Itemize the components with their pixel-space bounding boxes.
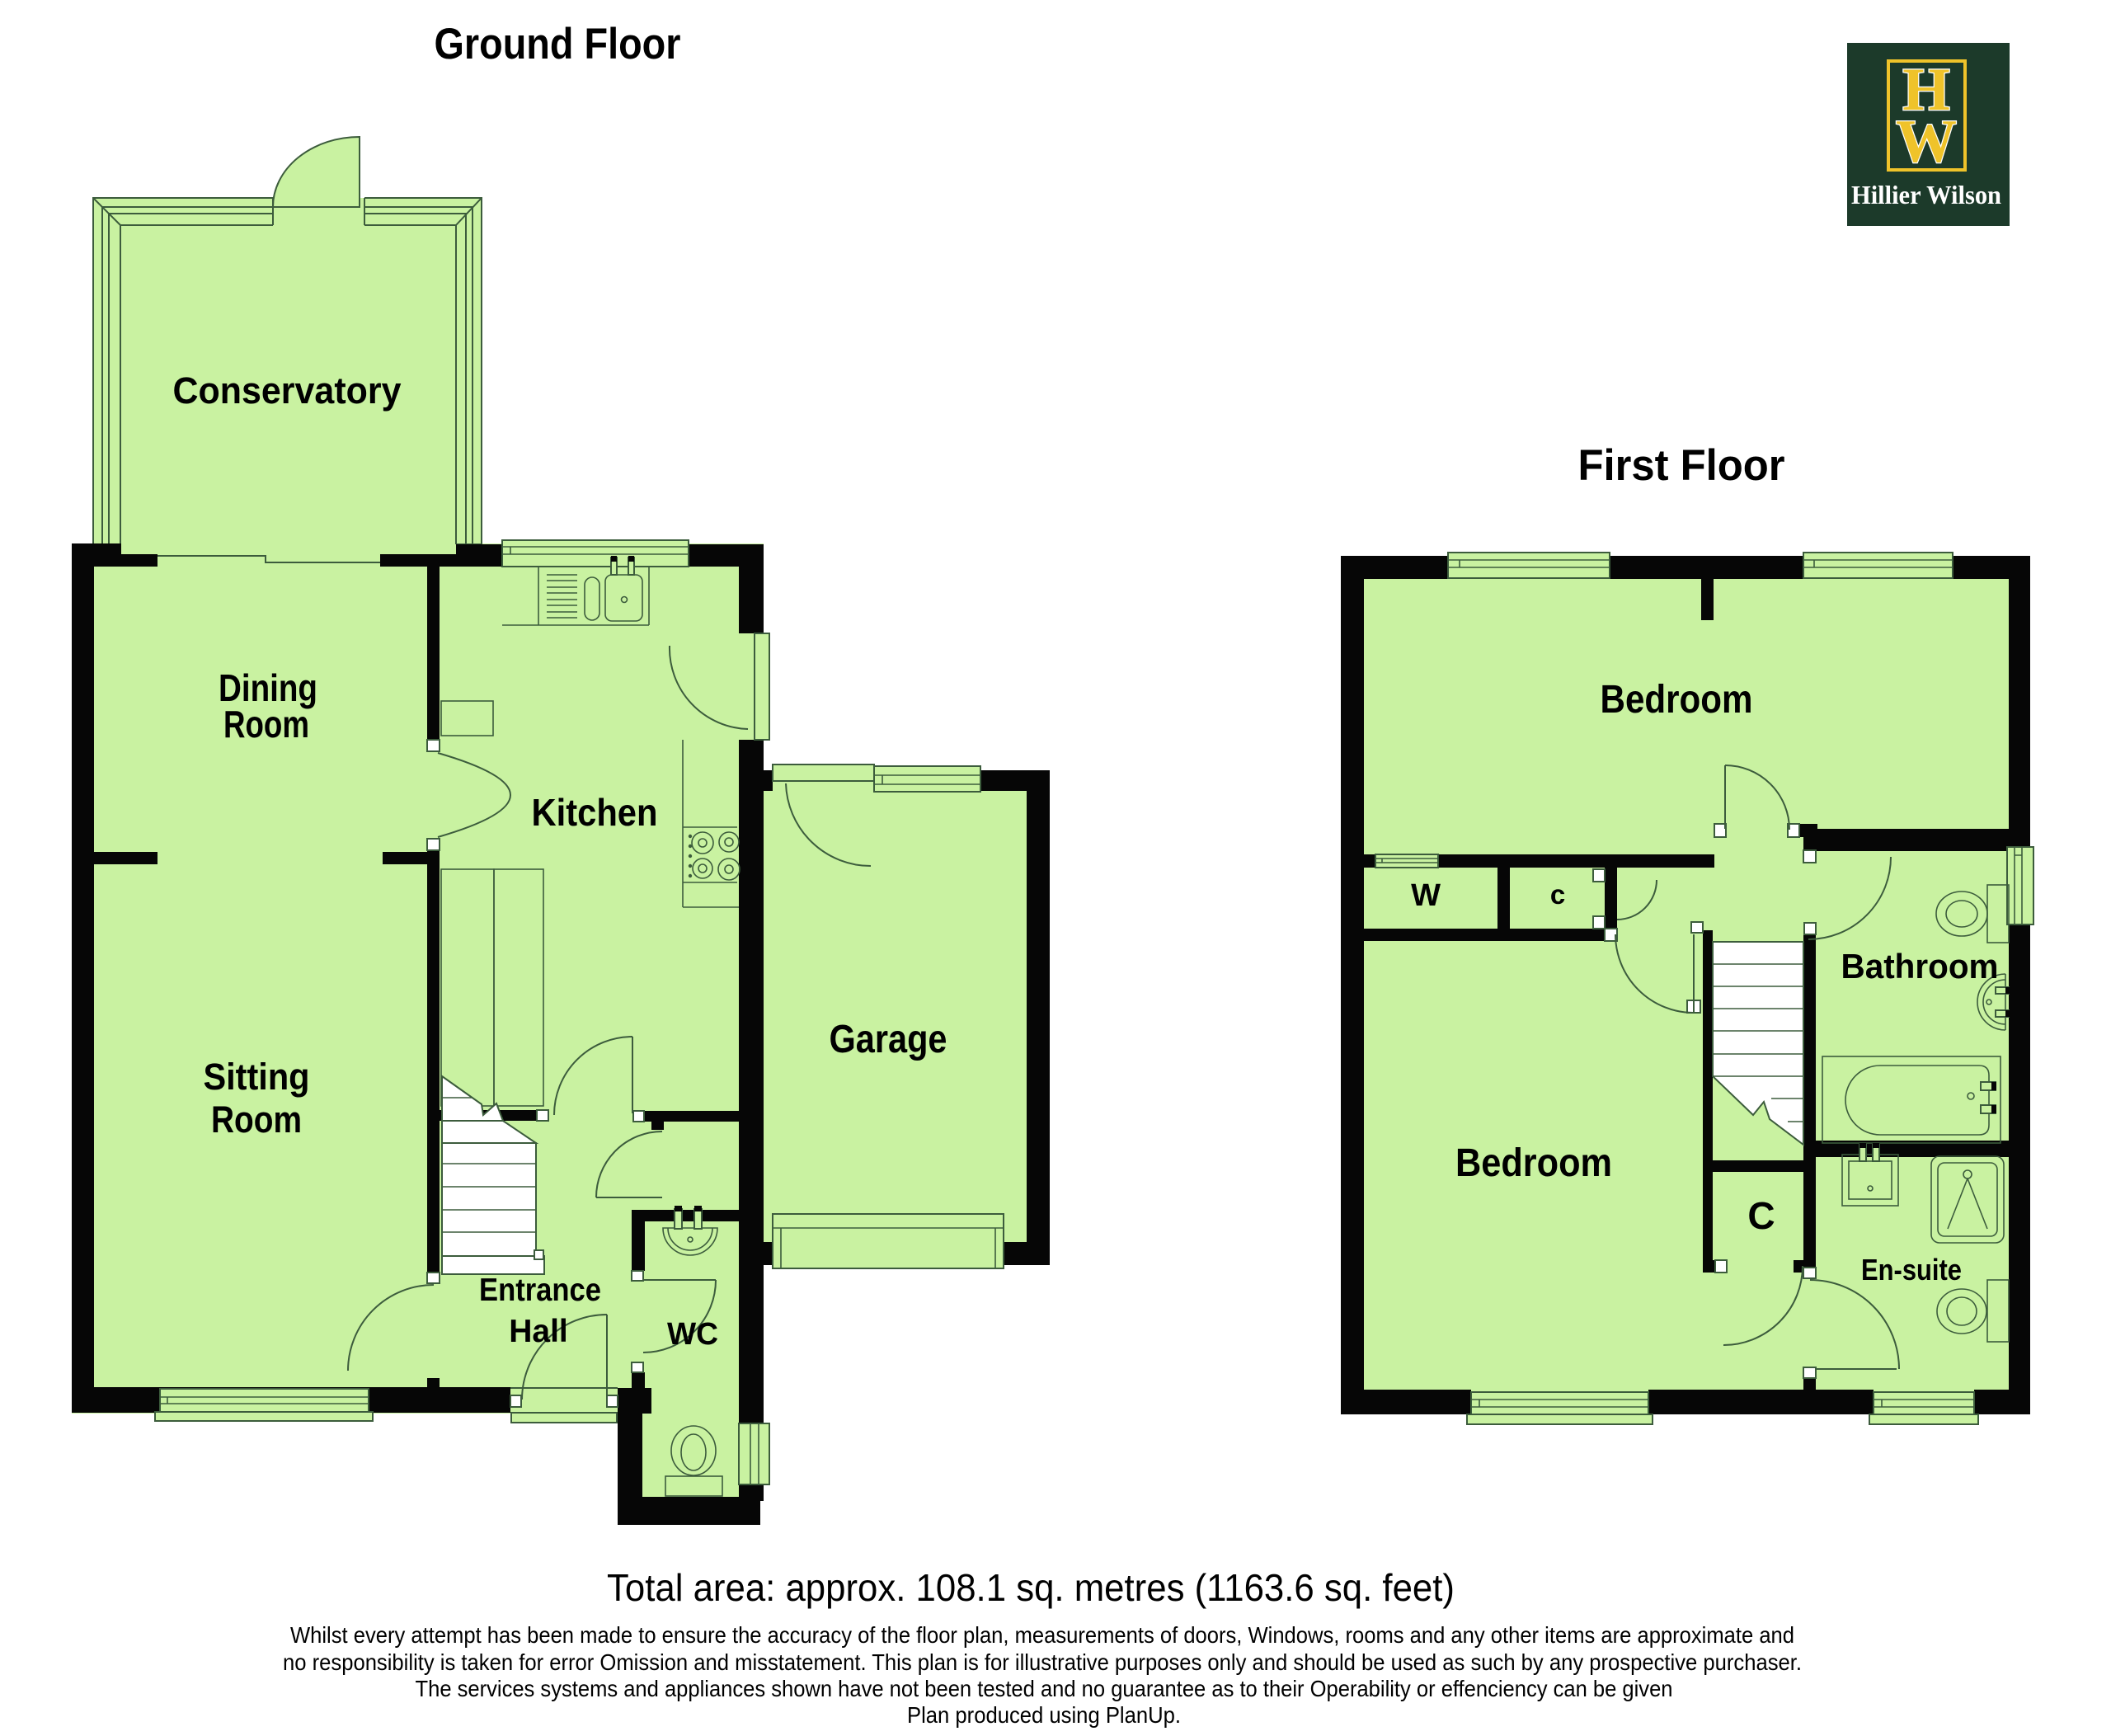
svg-text:Plan produced using PlanUp.: Plan produced using PlanUp. — [907, 1702, 1181, 1728]
svg-text:no responsibility is taken for: no responsibility is taken for error Omi… — [283, 1649, 1802, 1675]
svg-text:W: W — [1896, 108, 1957, 176]
svg-text:Hall: Hall — [509, 1314, 568, 1349]
svg-text:Whilst every attempt has been: Whilst every attempt has been made to en… — [290, 1622, 1794, 1648]
svg-text:Room: Room — [223, 703, 309, 746]
svg-text:W: W — [1411, 878, 1441, 913]
svg-text:Bedroom: Bedroom — [1455, 1141, 1612, 1185]
svg-text:The services systems and appli: The services systems and appliances show… — [416, 1676, 1673, 1701]
svg-text:Entrance: Entrance — [479, 1273, 601, 1308]
svg-text:C: C — [1747, 1194, 1775, 1237]
svg-text:Garage: Garage — [830, 1018, 947, 1061]
svg-text:Bathroom: Bathroom — [1841, 947, 1999, 986]
svg-text:First Floor: First Floor — [1578, 441, 1785, 490]
svg-text:Total area: approx. 108.1 sq.: Total area: approx. 108.1 sq. metres (11… — [607, 1566, 1455, 1609]
svg-text:Conservatory: Conservatory — [173, 369, 402, 412]
svg-text:Ground Floor: Ground Floor — [435, 20, 681, 68]
svg-text:Sitting: Sitting — [204, 1056, 310, 1098]
svg-text:Room: Room — [211, 1099, 302, 1141]
svg-text:Kitchen: Kitchen — [532, 791, 658, 834]
svg-text:En-suite: En-suite — [1861, 1253, 1962, 1287]
svg-text:c: c — [1550, 879, 1565, 910]
svg-text:WC: WC — [667, 1317, 718, 1352]
svg-text:Hillier Wilson: Hillier Wilson — [1851, 180, 2001, 209]
svg-text:Bedroom: Bedroom — [1601, 678, 1753, 722]
